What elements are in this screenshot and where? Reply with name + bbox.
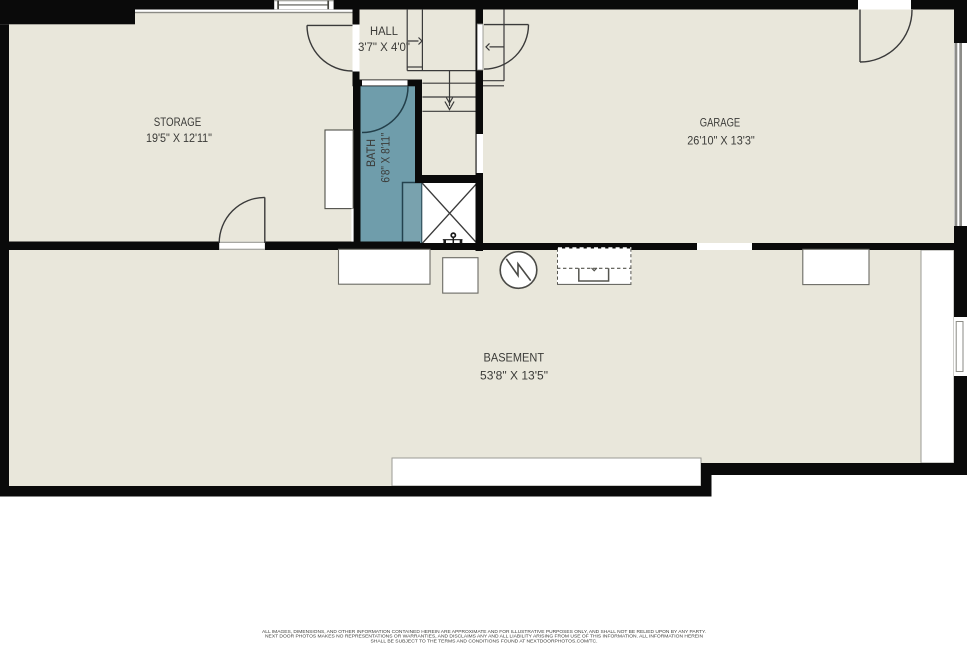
svg-text:53'8" X 13'5": 53'8" X 13'5" xyxy=(480,371,548,383)
svg-text:BATH: BATH xyxy=(366,139,378,167)
svg-text:19'5" X 12'11": 19'5" X 12'11" xyxy=(146,133,212,145)
svg-text:3'7" X 4'0": 3'7" X 4'0" xyxy=(358,42,410,54)
svg-text:SHALL BE SUBJECT TO THE TERMS: SHALL BE SUBJECT TO THE TERMS AND CONDIT… xyxy=(371,638,598,643)
svg-text:STORAGE: STORAGE xyxy=(154,117,202,129)
svg-text:HALL: HALL xyxy=(370,26,399,38)
svg-text:BASEMENT: BASEMENT xyxy=(484,353,545,365)
svg-text:GARAGE: GARAGE xyxy=(700,118,741,130)
svg-text:6'8" X 8'11": 6'8" X 8'11" xyxy=(381,133,393,183)
svg-text:26'10" X 13'3": 26'10" X 13'3" xyxy=(687,136,755,148)
